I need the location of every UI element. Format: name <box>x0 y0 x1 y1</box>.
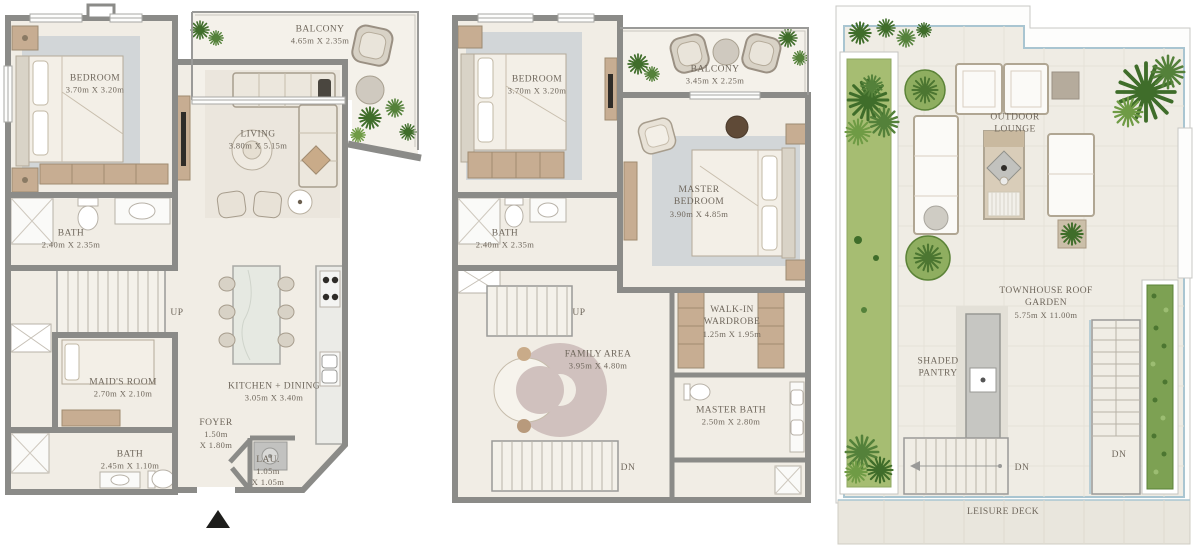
label-first-bath: BATH 2.40m X 2.35m <box>476 227 535 250</box>
label-ground-balcony: BALCONY 4.65m X 2.35m <box>291 23 350 46</box>
label-ground-up: UP <box>170 308 183 318</box>
label-ground-laundry: LAU. 1.05m X 1.05m <box>252 454 285 488</box>
label-first-family-area: FAMILY AREA 3.95m X 4.80m <box>565 348 632 371</box>
label-first-master-bedroom: MASTER BEDROOM 3.90m X 4.85m <box>664 184 734 220</box>
label-first-balcony: BALCONY 3.45m X 2.25m <box>686 63 745 86</box>
label-ground-maids-room: MAID'S ROOM 2.70m X 2.10m <box>89 376 157 399</box>
label-ground-bath: BATH 2.40m X 2.35m <box>42 227 101 250</box>
label-first-up: UP <box>572 308 585 318</box>
label-first-bedroom: BEDROOM 3.70m X 3.20m <box>508 73 567 96</box>
label-roof-garden: TOWNHOUSE ROOF GARDEN 5.75m X 11.00m <box>991 285 1101 321</box>
label-ground-bedroom: BEDROOM 3.70m X 3.20m <box>66 72 125 95</box>
label-ground-living: LIVING 3.80m X 5.15m <box>229 128 288 151</box>
label-ground-foyer: FOYER 1.50m X 1.80m <box>199 417 232 451</box>
label-ground-guest-bath: BATH 2.45m X 1.10m <box>101 448 160 471</box>
label-roof-leisure-deck: LEISURE DECK <box>967 506 1039 518</box>
label-roof-outdoor-lounge: OUTDOOR LOUNGE <box>978 112 1052 137</box>
label-roof-dn-2: DN <box>1112 450 1127 460</box>
floorplan-sheet: BEDROOM 3.70m X 3.20m BALCONY 4.65m X 2.… <box>0 0 1200 554</box>
label-first-master-bath: MASTER BATH 2.50m X 2.80m <box>696 404 766 427</box>
label-ground-kitchen-dining: KITCHEN + DINING 3.05m X 3.40m <box>228 380 320 403</box>
label-roof-dn-1: DN <box>1015 463 1030 473</box>
label-roof-shaded-pantry: SHADED PANTRY <box>908 356 968 381</box>
label-first-dn: DN <box>621 463 636 473</box>
label-first-walk-in-wardrobe: WALK-IN WARDROBE 1.25m X 1.95m <box>692 304 772 340</box>
labels-layer: BEDROOM 3.70m X 3.20m BALCONY 4.65m X 2.… <box>0 0 1200 554</box>
